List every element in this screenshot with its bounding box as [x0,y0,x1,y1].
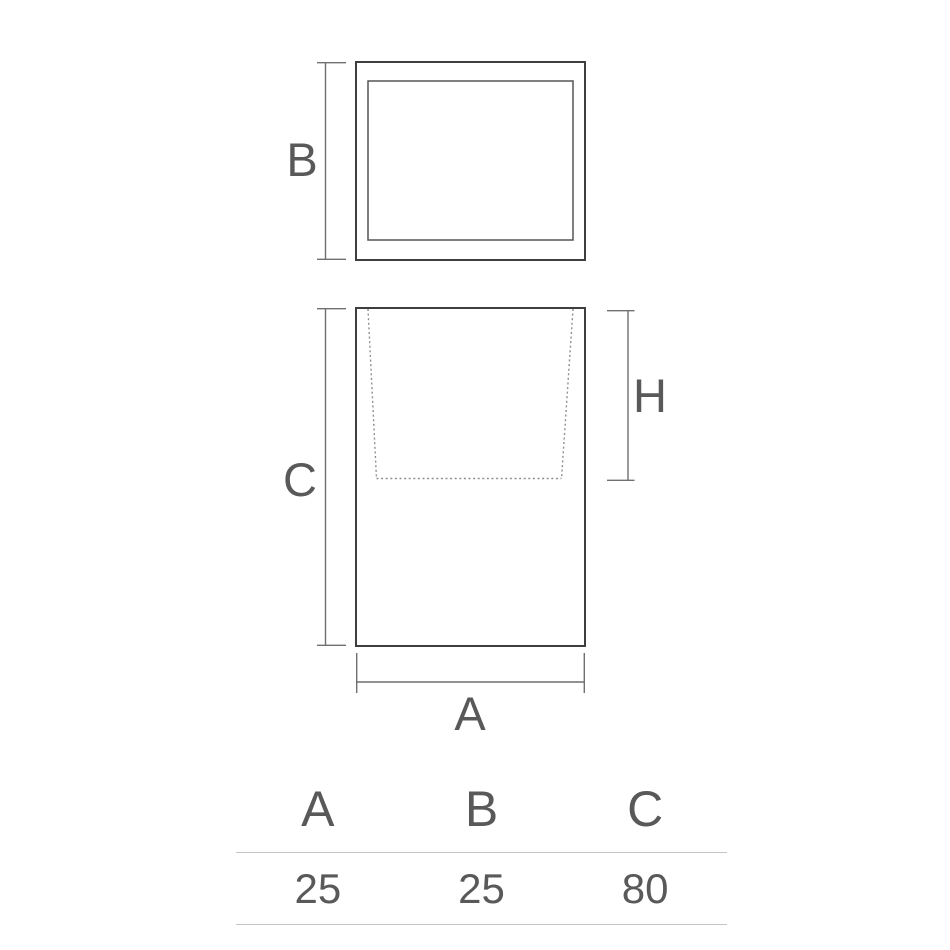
dimensions-table: A B C 25 25 80 [236,768,727,925]
table-value-a: 25 [236,868,400,910]
dimension-a-label: A [454,687,486,740]
cavity-dotted-left-line [368,309,377,479]
top-view-inner-rect [368,81,573,240]
technical-drawing: B C H A [0,0,950,760]
dimension-a: A [356,653,585,740]
dimension-c-label: C [283,453,317,506]
front-view-rect [356,308,585,646]
table-header-b: B [400,784,564,852]
dimension-diagram-page: B C H A [0,0,950,950]
front-view [356,308,585,646]
table-header-a: A [236,784,400,852]
dimension-b-label: B [286,133,317,186]
dimension-b: B [286,62,346,260]
top-view-outer-rect [356,62,585,260]
dimension-h: H [607,310,667,481]
dimension-h-label: H [633,369,667,422]
dimension-c: C [283,308,346,646]
top-view [356,62,585,260]
table-row: 25 25 80 [236,852,727,925]
table-header-c: C [563,784,727,852]
table-value-c: 80 [563,868,727,910]
table-value-b: 25 [400,868,564,910]
cavity-dotted-right-line [562,309,574,479]
table-header-row: A B C [236,768,727,852]
